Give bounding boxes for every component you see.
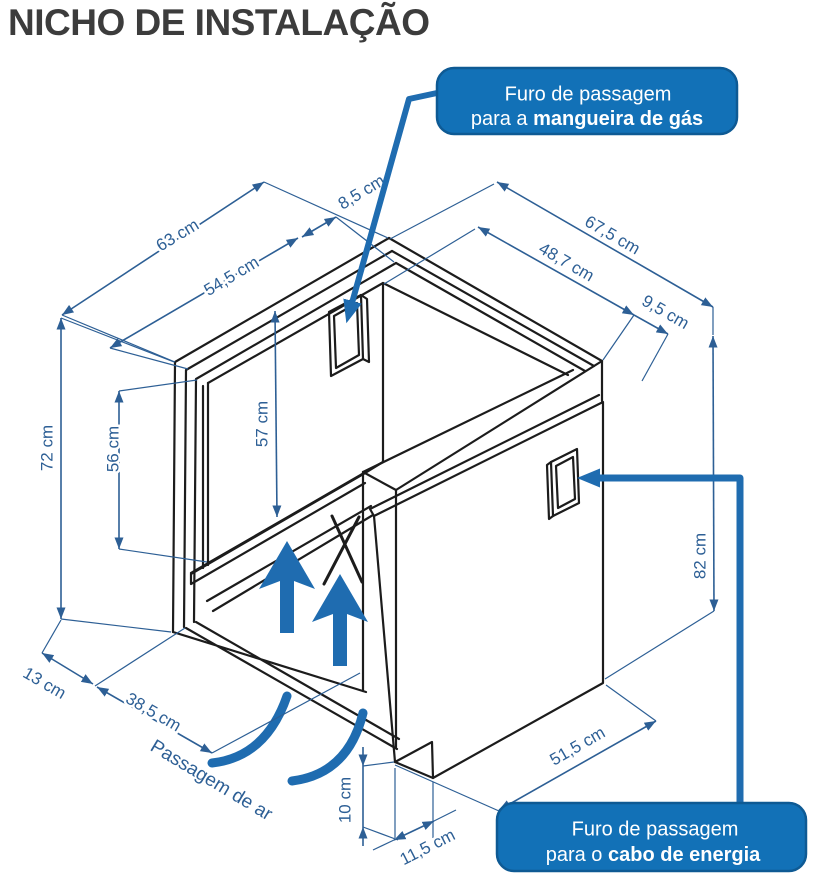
- dim-line-57: [275, 311, 277, 517]
- dim-label-82: 82 cm: [690, 533, 709, 579]
- power-callout: Furo de passagem para o cabo de energia: [497, 803, 806, 871]
- gas-callout: Furo de passagem para a mangueira de gás: [437, 68, 737, 134]
- gas-callout-line2: para a mangueira de gás: [471, 108, 703, 130]
- dim-label-10: 10 cm: [335, 777, 354, 823]
- floor-band: [173, 622, 399, 749]
- dim-label-115: 11,5 cm: [397, 825, 458, 869]
- top-band-inner: [396, 263, 585, 371]
- right-panel-notch: [395, 762, 433, 778]
- ceiling-right-edge: [383, 283, 568, 375]
- dim-label-95: 9,5 cm: [639, 291, 693, 333]
- dim-label-63: 63 cm: [153, 215, 202, 255]
- dim-label-385: 38,5 cm: [123, 689, 185, 736]
- dim-line-82: [713, 336, 714, 611]
- dim-label-545: 54,5 cm: [201, 252, 263, 299]
- dim-label-72: 72 cm: [37, 425, 56, 471]
- roof-descent-outer: [396, 361, 602, 490]
- diagram-page: NICHO DE INSTALAÇÃO: [0, 0, 813, 878]
- power-callout-line2: para o cabo de energia: [546, 844, 761, 866]
- up-arrow-icon: [312, 574, 368, 666]
- dim-label-57: 57 cm: [252, 401, 271, 447]
- air-swoosh-icon: [212, 696, 287, 763]
- dim-line-545: [110, 238, 298, 348]
- roof-descent-inner: [363, 370, 573, 472]
- dim-label-13: 13 cm: [20, 663, 70, 703]
- dim-label-56: 56 cm: [103, 426, 122, 472]
- dim-label-487: 48,7 cm: [536, 239, 598, 286]
- dim-line-85: [302, 217, 336, 237]
- dimension-lines: [42, 182, 714, 850]
- gas-callout-line1: Furo de passagem: [505, 83, 672, 105]
- gas-hole: [329, 295, 369, 376]
- dim-label-675: 67,5 cm: [582, 212, 644, 259]
- dim-line-675: [497, 182, 713, 307]
- niche-structure: [173, 238, 603, 778]
- dim-label-515: 51,5 cm: [547, 723, 609, 770]
- power-hole: [547, 449, 579, 519]
- power-leader-arrow: [598, 478, 740, 805]
- power-callout-line1: Furo de passagem: [572, 818, 739, 840]
- diagram-canvas: 63 cm 54,5 cm 8,5 cm 67,5 cm 48,7 cm 9,5…: [0, 0, 813, 878]
- air-flow-arrows: [212, 541, 368, 781]
